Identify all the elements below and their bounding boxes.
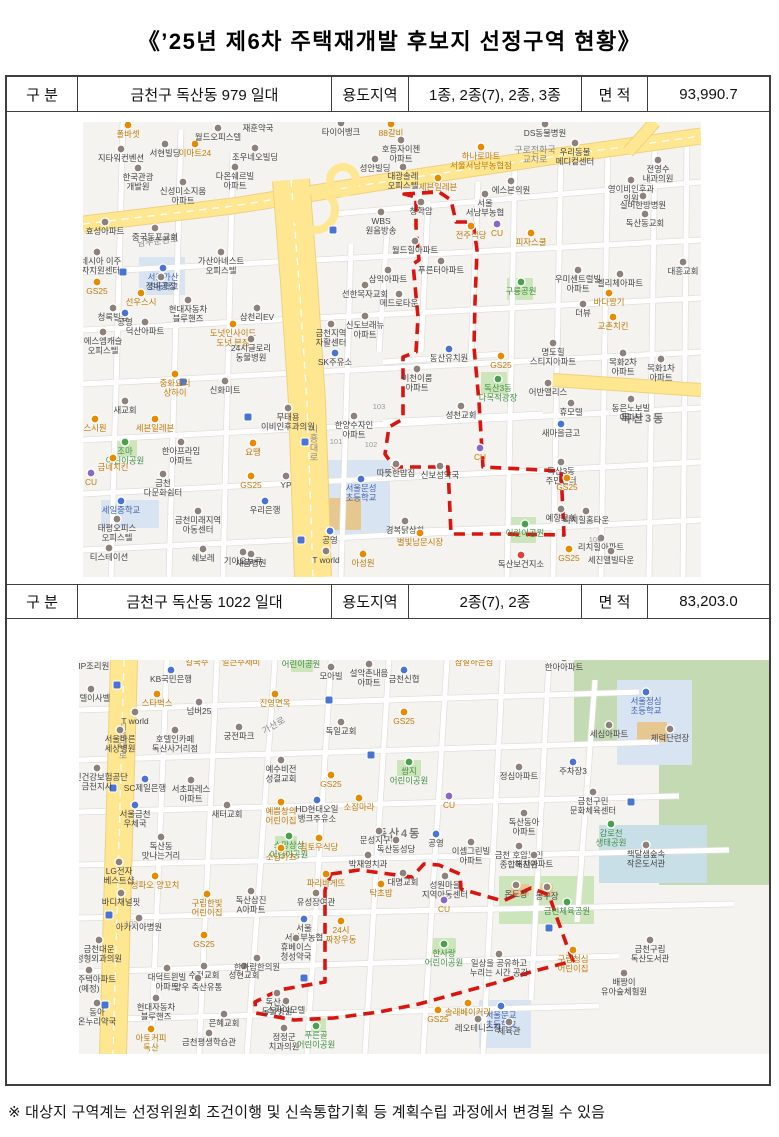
poi-k-icon (557, 458, 565, 466)
poi-b-icon (261, 497, 269, 505)
map-poi-label: 농구장 (535, 891, 558, 901)
bus-stop-icon (113, 681, 121, 689)
poi-k-icon (99, 328, 107, 336)
map-poi-label: 금천평생학습관 (182, 1037, 236, 1047)
status-table: 구 분 금천구 독산동 979 일대 용도지역 1종, 2종(7), 2종, 3… (5, 75, 771, 1086)
col-area-label: 면 적 (582, 77, 648, 111)
map-poi-label: VIP조리원 (79, 661, 109, 671)
map-poi-label: 지타워컨벤션 (98, 153, 144, 163)
map-poi-label: 공영 (428, 838, 443, 848)
map-poi-label: GS25 (240, 480, 262, 490)
map-poi-label: T world (312, 555, 340, 565)
poi-g-icon (517, 278, 525, 286)
poi-k-icon (397, 136, 405, 144)
map-poi-label: 은혜교회 (209, 1018, 240, 1028)
map-poi-label: 메드로타운 (380, 298, 419, 308)
map-poi-label: 칼국수 (185, 660, 208, 667)
map-poi-label: 현대자동차블루핸즈 (137, 1002, 176, 1022)
poi-k-icon (152, 994, 160, 1002)
poi-k-icon (639, 192, 647, 200)
poi-k-icon (399, 163, 407, 171)
poi-o-icon (467, 222, 475, 230)
map-poi-label: 참잘하는집 (455, 660, 494, 667)
map-poi-label: 온도장 (504, 889, 527, 899)
map-poi-label: 구립한빛어린이집 (192, 898, 223, 918)
map-poi-label: 동산유치원 (430, 353, 469, 363)
poi-g-icon (121, 438, 129, 446)
poi-k-icon (93, 764, 101, 772)
poi-k-icon (217, 248, 225, 256)
map-poi-label: 공영 (322, 535, 337, 545)
poi-k-icon (87, 685, 95, 693)
poi-k-icon (413, 365, 421, 373)
poi-o-icon (527, 229, 535, 237)
map-poi-label: 중화요리상하이 (160, 378, 191, 398)
poi-k-icon (282, 472, 290, 480)
map-poi-label: GS25 (320, 779, 342, 789)
poi-o-icon (171, 370, 179, 378)
poi-s-icon (497, 1002, 505, 1010)
poi-k-icon (177, 438, 185, 446)
poi-k-icon (312, 889, 320, 897)
map-poi-label: 24시글로리동물병원 (231, 343, 271, 363)
poi-k-icon (205, 1029, 213, 1037)
map-poi-label: 세븐일레븐 (419, 182, 458, 192)
map-poi-label: 소담카츠 (266, 852, 297, 862)
map-cell-1022: 시흥대로가산로독산4동VIP조리원칼국수얼큰수제비어린이공원설악촌내음아파트모아… (7, 619, 769, 1084)
map-poi-label: 주차장3 (559, 766, 587, 776)
map-poi-label: 아카시아병원 (116, 922, 162, 932)
poi-g-icon (312, 1022, 320, 1030)
poi-k-icon (214, 124, 222, 132)
map-poi-label: 재훈약국 (243, 123, 274, 133)
major-road (291, 180, 313, 577)
col-gubun-value: 금천구 독산동 979 일대 (78, 77, 332, 111)
poi-o-icon (203, 890, 211, 898)
map-poi-label: DS동물병원 (524, 128, 566, 138)
map-poi-label: 한국관광개발원 (123, 172, 154, 192)
map-poi-label: GS25 (558, 553, 580, 563)
map-poi-label: 스시원 (83, 423, 106, 433)
map-poi-label: GS25 (86, 286, 108, 296)
map-poi-label: 서울문성초등학교 (346, 483, 377, 503)
poi-c-icon (445, 792, 453, 800)
map-poi-label: 대흥교회 (668, 266, 699, 276)
poi-c-icon (476, 444, 484, 452)
table-row-1022: 구 분 금천구 독산동 1022 일대 용도지역 2종(7), 2종 면 적 8… (7, 584, 769, 619)
col-usezone-value: 1종, 2종(7), 2종, 3종 (409, 77, 582, 111)
map-poi-label: 조우네오빌딩 (232, 152, 278, 162)
map-poi-label: 서울정심초등학교 (631, 696, 662, 716)
poi-o-icon (249, 439, 257, 447)
poi-k-icon (85, 966, 93, 974)
map-poi-label: 금천구립독산도서관 (631, 944, 670, 964)
map-poi-label: 청파오 양꼬치 (131, 880, 180, 890)
poi-k-icon (200, 962, 208, 970)
map-poi-label: 요땡 (245, 447, 260, 457)
poi-k-icon (392, 836, 400, 844)
map-poi-label: 따뜻한밥집 (377, 468, 416, 478)
poi-k-icon (121, 397, 129, 405)
poi-g-icon (607, 820, 615, 828)
map-poi-label: CU (474, 452, 486, 462)
map-poi-label: 102 (365, 440, 378, 449)
col-gubun-value: 금천구 독산동 1022 일대 (78, 585, 332, 618)
poi-o-icon (565, 545, 573, 553)
map-poi-label: 리치힐홈타운 (563, 515, 610, 525)
poi-o-icon (497, 352, 505, 360)
map-poi-label: CU (85, 477, 97, 487)
poi-k-icon (184, 296, 192, 304)
poi-k-icon (654, 156, 662, 164)
poi-k-icon (607, 547, 615, 555)
poi-k-icon (574, 266, 582, 274)
poi-k-icon (437, 257, 445, 265)
poi-k-icon (239, 548, 247, 556)
poi-k-icon (251, 144, 259, 152)
poi-k-icon (141, 318, 149, 326)
map-poi-label: 신화미트 (210, 385, 241, 395)
poi-b-icon (445, 345, 453, 353)
map-poi-label: GS25 (193, 939, 215, 949)
poi-k-icon (337, 718, 345, 726)
map-poi-label: 덕산아파트 (126, 326, 165, 336)
map-poi-label: 구립청심어린이집 (558, 954, 589, 974)
poi-h-icon (517, 551, 525, 559)
map-poi-label: 실버한방병원 (620, 200, 666, 210)
poi-k-icon (365, 660, 373, 668)
map-poi-label: 서현빌딩 (150, 148, 181, 158)
map-poi-label: SC제일은행 (124, 783, 166, 793)
poi-g-icon (405, 758, 413, 766)
map-poi-label: 독산동성당 (377, 844, 416, 854)
map-poi-label: 독산동아아파트 (509, 817, 540, 837)
poi-o-icon (277, 798, 285, 806)
bus-stop-icon (627, 798, 635, 806)
col-usezone-label: 용도지역 (332, 585, 409, 618)
poi-k-icon (115, 858, 123, 866)
map-poi-label: 예수비전성결교회 (266, 764, 297, 784)
poi-k-icon (134, 164, 142, 172)
poi-s-icon (159, 264, 167, 272)
poi-k-icon (327, 663, 335, 671)
map-poi-label: 유성장여관 (297, 897, 336, 907)
poi-o-icon (277, 844, 285, 852)
map-poi-label: 독산동교회 (626, 218, 665, 228)
poi-b-icon (300, 915, 308, 923)
map-poi-label: 성안빌딩 (360, 163, 391, 173)
map-poi-label: 서울금천우체국 (120, 809, 151, 829)
map-poi-label: 쉐보레 (191, 553, 214, 563)
map-poi-label: 수정교회 (189, 970, 220, 980)
map-poi-label: 새마을금고 (542, 428, 581, 438)
map-poi-label: 세진앨빌타운 (588, 555, 635, 565)
poi-k-icon (505, 1018, 513, 1026)
map-poi-label: 바디채널핏 (102, 897, 141, 907)
map-district-1022: 시흥대로가산로독산4동VIP조리원칼국수얼큰수제비어린이공원설악촌내음아파트모아… (79, 660, 769, 1054)
poi-s-icon (642, 688, 650, 696)
map-poi-label: 스카이모텔 (267, 1005, 306, 1015)
poi-k-icon (616, 270, 624, 278)
map-cell-979: 남부순환로시흥대로독산3동폴바셋지타워컨벤션서현빌딩이마트24월드오피스텔다온쉐… (7, 112, 769, 584)
map-poi-label: 타이어뱅크 (322, 127, 361, 137)
map-poi-label: 일상을 공유하고누리는 시간 공간 (470, 958, 529, 978)
map-poi-label: 얼큰수제비 (222, 660, 261, 667)
poi-k-icon (646, 936, 654, 944)
poi-k-icon (582, 507, 590, 515)
poi-k-icon (163, 964, 171, 972)
poi-c-icon (493, 220, 501, 228)
map-poi-label: 더뷰 (575, 308, 591, 318)
map-poi-label: 책달샘숲속작은도서관 (627, 849, 666, 869)
poi-k-icon (273, 989, 281, 997)
poi-b-icon (557, 420, 565, 428)
map-poi-label: 신보성약국 (421, 470, 460, 480)
poi-o-icon (147, 1025, 155, 1033)
map-poi-label: 대명교회 (388, 877, 419, 887)
poi-k-icon (161, 140, 169, 148)
map-poi-label: SK주유소 (318, 357, 353, 367)
poi-o-icon (247, 472, 255, 480)
map-poi-label: 새터교회 (212, 809, 243, 819)
map-poi-label: 궁전파크 (224, 731, 255, 741)
poi-b-icon (121, 309, 129, 317)
poi-k-icon (231, 163, 239, 171)
poi-k-icon (436, 462, 444, 470)
map-poi-label: 엘리체아파트 (597, 278, 644, 288)
poi-k-icon (280, 1024, 288, 1032)
poi-g-icon (494, 375, 502, 383)
poi-k-icon (549, 339, 557, 347)
poi-k-icon (377, 208, 385, 216)
map-poi-label: 목화1차아파트 (647, 363, 675, 383)
poi-k-icon (666, 725, 674, 733)
map-poi-label: 푸른터아파트 (418, 265, 465, 275)
col-gubun-label: 구 분 (7, 585, 78, 618)
poi-o-icon (151, 415, 159, 423)
map-poi-label: 대광솔레오피스텔 (388, 171, 419, 191)
map-canvas-979: 남부순환로시흥대로독산3동폴바셋지타워컨벤션서현빌딩이마트24월드오피스텔다온쉐… (83, 122, 701, 577)
poi-k-icon (474, 1015, 482, 1023)
poi-k-icon (642, 841, 650, 849)
map-poi-label: 어반앨리스 (529, 387, 568, 397)
poi-k-icon (247, 887, 255, 895)
map-canvas-1022: 시흥대로가산로독산4동VIP조리원칼국수얼큰수제비어린이공원설악촌내음아파트모아… (79, 660, 769, 1054)
map-poi-label: 한아아파트 (545, 662, 584, 672)
poi-c-icon (440, 896, 448, 904)
poi-o-icon (569, 946, 577, 954)
poi-k-icon (515, 763, 523, 771)
poi-k-icon (247, 550, 255, 558)
map-poi-label: 서울바른세상병원 (105, 734, 136, 754)
poi-k-icon (292, 934, 300, 942)
map-poi-label: HD현대오일뱅크주유소 (296, 804, 339, 824)
map-poi-label: 도네시아 이주동자지원센터 (83, 256, 122, 276)
poi-o-icon (563, 474, 571, 482)
map-poi-label: 101 (330, 437, 343, 446)
poi-k-icon (284, 404, 292, 412)
map-poi-label: 넘버25 (187, 706, 212, 716)
poi-b-icon (331, 349, 339, 357)
map-poi-label: 박재영치과 (349, 859, 388, 869)
poi-o-icon (605, 289, 613, 297)
map-poi-label: CU (491, 228, 503, 238)
poi-o-icon (416, 529, 424, 537)
bus-stop-icon (301, 438, 309, 446)
map-poi-label: 전영수내과의원 (643, 164, 674, 184)
poi-k-icon (417, 198, 425, 206)
poi-k-icon (467, 838, 475, 846)
map-poi-label: 우리은행 (250, 505, 281, 515)
poi-o-icon (137, 289, 145, 297)
poi-o-icon (93, 278, 101, 286)
map-poi-label: 파리바게뜨 (307, 878, 346, 888)
poi-k-icon (187, 776, 195, 784)
poi-k-icon (199, 545, 207, 553)
map-poi-label: 솔래베이커리 (445, 1007, 491, 1017)
poi-k-icon (375, 827, 383, 835)
poi-k-icon (277, 756, 285, 764)
poi-k-icon (515, 842, 523, 850)
map-poi-label: 태평오피스오피스텔 (98, 523, 137, 543)
map-poi-label: 티스테이션 (90, 552, 129, 562)
poi-o-icon (153, 690, 161, 698)
map-poi-label: 전주식당 (456, 230, 487, 240)
poi-k-icon (101, 218, 109, 226)
map-poi-label: 금천체육공원 (544, 906, 590, 916)
poi-k-icon (179, 178, 187, 186)
map-poi-label: 월드오피스텔 (195, 132, 242, 142)
map-poi-label: KB국민은행 (150, 674, 192, 684)
poi-k-icon (579, 300, 587, 308)
map-poi-label: 103 (373, 402, 386, 411)
table-row-979: 구 분 금천구 독산동 979 일대 용도지역 1종, 2종(7), 2종, 3… (7, 77, 769, 112)
bus-stop-icon (545, 924, 553, 932)
map-poi-label: 해찬아파트 (515, 859, 554, 869)
poi-k-icon (371, 155, 379, 163)
map-poi-label: 구룡공원 (506, 286, 537, 296)
poi-k-icon (495, 950, 503, 958)
col-usezone-label: 용도지역 (332, 77, 409, 111)
poi-k-icon (530, 851, 538, 859)
poi-o-icon (355, 794, 363, 802)
map-poi-label: 선우스시 (126, 297, 157, 307)
map-poi-label: 정정군치과의원 (269, 1032, 300, 1052)
map-poi-label: 정심아파트 (500, 771, 539, 781)
map-poi-label: 삼천리EV (240, 312, 275, 322)
map-poi-label: 독산삼진A아파트 (236, 895, 267, 915)
map-poi-label: 침토우식당 (300, 842, 339, 852)
poi-k-icon (627, 395, 635, 403)
poi-o-icon (477, 143, 485, 151)
poi-k-icon (567, 399, 575, 407)
map-poi-label: 탁초밥 (369, 888, 392, 898)
poi-k-icon (481, 190, 489, 198)
bus-stop-icon (329, 226, 337, 234)
map-poi-label: 금네치킨 (98, 462, 129, 472)
map-poi-label: 102 (125, 919, 138, 928)
poi-k-icon (93, 999, 101, 1007)
poi-k-icon (520, 809, 528, 817)
map-poi-label: 이천이룸아파트 (402, 373, 433, 393)
poi-o-icon (327, 771, 335, 779)
map-poi-label: 세일중학교 (102, 505, 141, 515)
poi-b-icon (167, 666, 175, 674)
map-poi-label: 어린이공원 (282, 660, 321, 669)
poi-k-icon (194, 507, 202, 515)
col-usezone-value: 2종(7), 2종 (409, 585, 582, 618)
poi-k-icon (543, 883, 551, 891)
map-poi-label: 별빛남문시장 (397, 537, 444, 547)
col-area-value: 83,203.0 (648, 585, 769, 618)
poi-o-icon (91, 415, 99, 423)
poi-k-icon (95, 936, 103, 944)
poi-k-icon (361, 281, 369, 289)
poi-k-icon (679, 258, 687, 266)
poi-o-icon (109, 454, 117, 462)
map-poi-label: 예쁨창의어린이집 (266, 806, 297, 826)
poi-k-icon (282, 997, 290, 1005)
poi-o-icon (400, 708, 408, 716)
map-poi-label: 에스엠캐슬오피스텔 (84, 336, 123, 356)
map-poi-label: 독산보건지소 (498, 559, 545, 569)
bus-stop-icon (105, 911, 113, 919)
map-poi-label: 체력단련장 (651, 733, 690, 743)
map-poi-label: 금천지역자활센터 (316, 328, 347, 348)
poi-b-icon (432, 830, 440, 838)
poi-o-icon (337, 917, 345, 925)
map-poi-label: 에스본의원 (492, 185, 531, 195)
poi-o-icon (315, 834, 323, 842)
map-poi-label: CU (443, 800, 455, 810)
poi-k-icon (253, 304, 261, 312)
poi-g-icon (285, 832, 293, 840)
bus-stop-icon (300, 974, 308, 982)
bus-stop-icon (119, 268, 127, 276)
poi-k-icon (350, 412, 358, 420)
map-poi-label: 새교회 (113, 405, 136, 415)
map-poi-label: GS25 (490, 360, 512, 370)
bus-stop-icon (297, 536, 305, 544)
poi-s-icon (117, 497, 125, 505)
map-poi-label: YP (280, 480, 292, 490)
poi-k-icon (457, 402, 465, 410)
map-poi-label: 아성원 (351, 558, 374, 568)
col-area-value: 93,990.7 (648, 77, 769, 111)
map-poi-label: CU (438, 904, 450, 914)
poi-k-icon (93, 248, 101, 256)
poi-k-icon (392, 460, 400, 468)
poi-o-icon (200, 931, 208, 939)
poi-b-icon (141, 775, 149, 783)
poi-k-icon (395, 290, 403, 298)
poi-b-icon (313, 796, 321, 804)
map-district-979: 남부순환로시흥대로독산3동폴바셋지타워컨벤션서현빌딩이마트24월드오피스텔다온쉐… (83, 122, 701, 577)
map-poi-label: 모아빌 (319, 671, 342, 681)
map-poi-label: 금천신협 (389, 674, 420, 684)
poi-k-icon (117, 145, 125, 153)
poi-k-icon (401, 517, 409, 525)
poi-k-icon (247, 335, 255, 343)
poi-k-icon (399, 869, 407, 877)
map-poi-label: 세심아파트 (590, 729, 629, 739)
poi-k-icon (384, 266, 392, 274)
bus-stop-icon (325, 696, 333, 704)
poi-o-icon (229, 320, 237, 328)
poi-o-icon (609, 313, 617, 321)
poi-k-icon (557, 505, 565, 513)
map-poi-label: 바다짱기 (594, 297, 625, 307)
